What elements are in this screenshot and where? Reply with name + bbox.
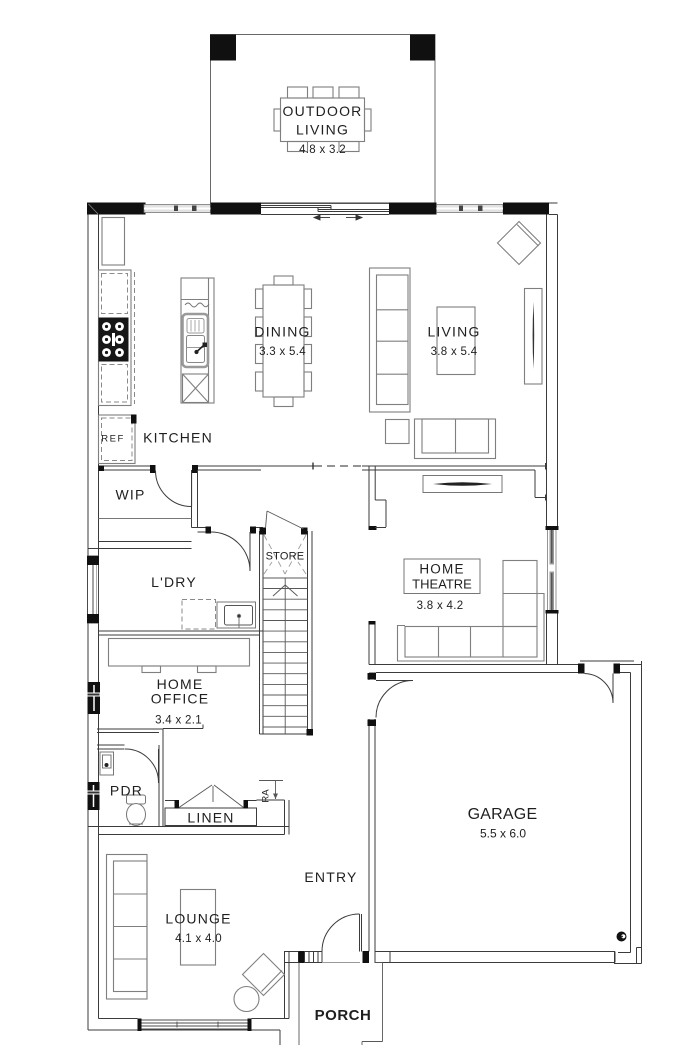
svg-text:4.1 x 4.0: 4.1 x 4.0 xyxy=(175,933,222,945)
svg-text:HOME: HOME xyxy=(419,562,464,577)
svg-text:L'DRY: L'DRY xyxy=(151,574,197,590)
svg-text:3.4 x 2.1: 3.4 x 2.1 xyxy=(155,715,202,727)
svg-text:ENTRY: ENTRY xyxy=(304,869,357,885)
svg-text:RA: RA xyxy=(261,789,272,803)
svg-text:OFFICE: OFFICE xyxy=(151,691,210,707)
svg-text:STORE: STORE xyxy=(266,551,305,563)
svg-text:THEATRE: THEATRE xyxy=(412,577,472,592)
svg-text:4.8 x 3.2: 4.8 x 3.2 xyxy=(299,144,346,156)
svg-text:OUTDOOR: OUTDOOR xyxy=(283,103,363,119)
svg-text:3.8 x 4.2: 3.8 x 4.2 xyxy=(417,600,464,612)
svg-text:LIVING: LIVING xyxy=(296,122,349,138)
svg-text:PDR: PDR xyxy=(110,783,143,799)
svg-text:3.8 x 5.4: 3.8 x 5.4 xyxy=(431,346,478,358)
svg-text:LOUNGE: LOUNGE xyxy=(165,911,231,927)
svg-text:5.5 x 6.0: 5.5 x 6.0 xyxy=(480,827,526,841)
svg-text:KITCHEN: KITCHEN xyxy=(143,430,213,446)
svg-text:REF: REF xyxy=(101,434,125,445)
svg-text:DINING: DINING xyxy=(254,324,310,340)
svg-text:LINEN: LINEN xyxy=(187,810,234,826)
svg-text:LIVING: LIVING xyxy=(427,324,480,340)
svg-text:3.3 x 5.4: 3.3 x 5.4 xyxy=(259,346,306,358)
svg-text:PORCH: PORCH xyxy=(315,1007,372,1024)
svg-text:WIP: WIP xyxy=(115,487,145,503)
svg-text:GARAGE: GARAGE xyxy=(468,806,538,823)
